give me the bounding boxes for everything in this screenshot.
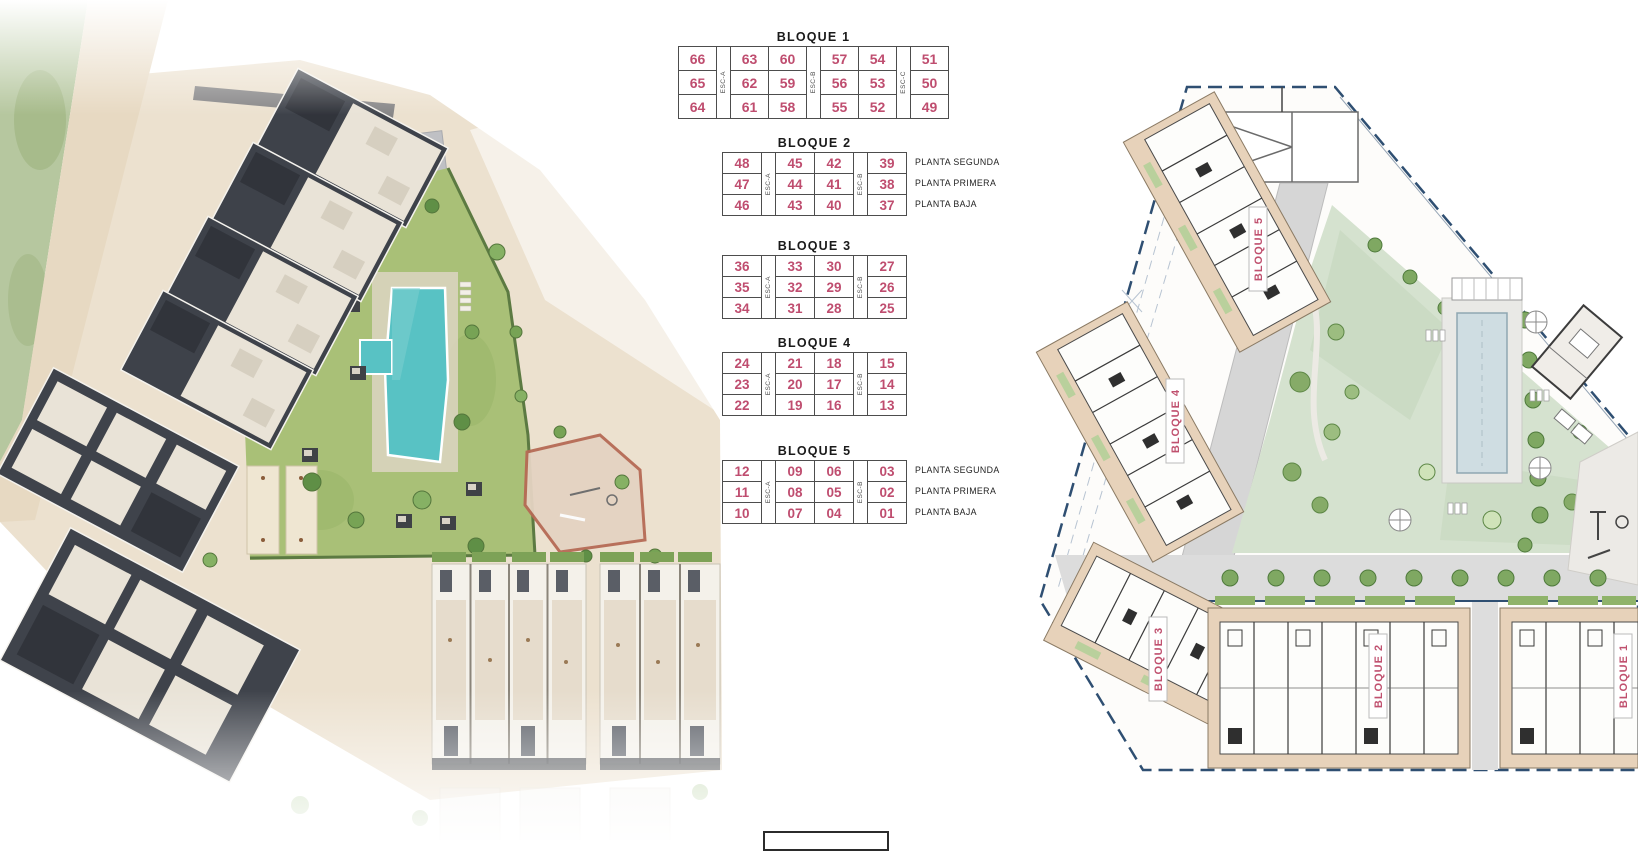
- plan-block-2: [1208, 596, 1470, 768]
- unit-cell: 27: [868, 256, 906, 276]
- unit-cell: 25: [868, 298, 906, 318]
- svg-text:BLOQUE 4: BLOQUE 4: [1170, 389, 1182, 453]
- block-table-3: BLOQUE 3ESC-AESC-B3633302735322926343128…: [722, 239, 907, 319]
- plan-block-5-label: BLOQUE 5: [1249, 207, 1267, 291]
- unit-cell: 49: [911, 95, 948, 118]
- stairwell-label-text: ESC-A: [765, 373, 772, 395]
- unit-cell: 40: [815, 195, 853, 215]
- floor-label: PLANTA SEGUNDA: [915, 460, 1000, 481]
- unit-cell: 52: [859, 95, 896, 118]
- stairwell-label-text: ESC-B: [857, 276, 864, 298]
- unit-cell: 46: [723, 195, 761, 215]
- stairwell-label-text: ESC-B: [857, 373, 864, 395]
- unit-cell: 53: [859, 71, 896, 94]
- unit-cell: 39: [868, 153, 906, 173]
- floor-label: PLANTA BAJA: [915, 502, 977, 523]
- stairwell-label: ESC-B: [854, 256, 867, 318]
- unit-cell: 18: [815, 353, 853, 373]
- stairwell-label: ESC-B: [854, 353, 867, 415]
- unit-cell: 43: [776, 195, 814, 215]
- floor-label: PLANTA BAJA: [915, 194, 977, 215]
- stairwell-label: ESC-B: [807, 47, 820, 118]
- plan-pool: [1442, 278, 1522, 483]
- unit-cell: 09: [776, 461, 814, 481]
- unit-grid: ESC-AESC-B120906031108050210070401: [722, 460, 907, 524]
- unit-cell: 21: [776, 353, 814, 373]
- unit-cell: 57: [821, 47, 858, 70]
- unit-cell: 16: [815, 395, 853, 415]
- block-table-4: BLOQUE 4ESC-AESC-B2421181523201714221916…: [722, 336, 907, 416]
- unit-cell: 61: [731, 95, 768, 118]
- stairwell-label: ESC-A: [762, 256, 775, 318]
- unit-cell: 56: [821, 71, 858, 94]
- unit-cell: 50: [911, 71, 948, 94]
- unit-cell: 24: [723, 353, 761, 373]
- block-table-1: BLOQUE 1ESC-AESC-BESC-C66636057545165625…: [678, 30, 949, 119]
- stairwell-label-text: ESC-A: [720, 71, 727, 93]
- svg-text:BLOQUE 1: BLOQUE 1: [1618, 644, 1630, 708]
- unit-cell: 13: [868, 395, 906, 415]
- unit-cell: 35: [723, 277, 761, 297]
- unit-cell: 22: [723, 395, 761, 415]
- block-title: BLOQUE 3: [722, 239, 907, 254]
- stairwell-label-text: ESC-A: [765, 173, 772, 195]
- unit-cell: 34: [723, 298, 761, 318]
- unit-cell: 05: [815, 482, 853, 502]
- unit-cell: 38: [868, 174, 906, 194]
- unit-cell: 20: [776, 374, 814, 394]
- unit-cell: 41: [815, 174, 853, 194]
- site-plan-illustration: BLOQUE 5 BLOQUE 4 BLOQUE 3 BLOQUE 2 BLOQ…: [980, 0, 1638, 840]
- unit-grid: ESC-AESC-BESC-C6663605754516562595653506…: [678, 46, 949, 119]
- unit-grid: ESC-AESC-B363330273532292634312825: [722, 255, 907, 319]
- partial-legend-box: [763, 831, 889, 851]
- unit-cell: 08: [776, 482, 814, 502]
- aerial-render-illustration: [0, 0, 750, 840]
- unit-cell: 06: [815, 461, 853, 481]
- unit-cell: 58: [769, 95, 806, 118]
- unit-cell: 26: [868, 277, 906, 297]
- stairwell-label-text: ESC-B: [857, 173, 864, 195]
- stairwell-label: ESC-A: [762, 153, 775, 215]
- stairwell-label: ESC-A: [717, 47, 730, 118]
- stairwell-label: ESC-B: [854, 461, 867, 523]
- plan-block-2-label: BLOQUE 2: [1369, 634, 1387, 718]
- floor-label: PLANTA PRIMERA: [915, 481, 996, 502]
- block-title: BLOQUE 4: [722, 336, 907, 351]
- stairwell-label-text: ESC-A: [765, 276, 772, 298]
- unit-cell: 55: [821, 95, 858, 118]
- unit-grid: ESC-AESC-B484542394744413846434037: [722, 152, 907, 216]
- unit-cell: 14: [868, 374, 906, 394]
- unit-cell: 28: [815, 298, 853, 318]
- block-table-2: BLOQUE 2ESC-AESC-B4845423947444138464340…: [722, 136, 907, 216]
- stairwell-label: ESC-B: [854, 153, 867, 215]
- svg-text:BLOQUE 3: BLOQUE 3: [1153, 627, 1165, 691]
- unit-cell: 66: [679, 47, 716, 70]
- unit-cell: 48: [723, 153, 761, 173]
- stairwell-label: ESC-A: [762, 353, 775, 415]
- avenue-trees: [1222, 570, 1606, 586]
- plan-block-4-label: BLOQUE 4: [1166, 379, 1184, 463]
- svg-text:BLOQUE 5: BLOQUE 5: [1253, 217, 1265, 281]
- unit-cell: 45: [776, 153, 814, 173]
- unit-cell: 32: [776, 277, 814, 297]
- floor-label: PLANTA SEGUNDA: [915, 152, 1000, 173]
- stairwell-label: ESC-C: [897, 47, 910, 118]
- floor-label: PLANTA PRIMERA: [915, 173, 996, 194]
- unit-cell: 54: [859, 47, 896, 70]
- unit-cell: 29: [815, 277, 853, 297]
- unit-grid: ESC-AESC-B242118152320171422191613: [722, 352, 907, 416]
- unit-cell: 65: [679, 71, 716, 94]
- unit-cell: 07: [776, 503, 814, 523]
- unit-cell: 33: [776, 256, 814, 276]
- stairwell-label: ESC-A: [762, 461, 775, 523]
- unit-cell: 42: [815, 153, 853, 173]
- stairwell-label-text: ESC-B: [857, 481, 864, 503]
- unit-cell: 36: [723, 256, 761, 276]
- block-title: BLOQUE 2: [722, 136, 907, 151]
- unit-cell: 03: [868, 461, 906, 481]
- unit-cell: 47: [723, 174, 761, 194]
- unit-cell: 31: [776, 298, 814, 318]
- plan-block-3-label: BLOQUE 3: [1149, 617, 1167, 701]
- unit-cell: 23: [723, 374, 761, 394]
- stairwell-label-text: ESC-A: [765, 481, 772, 503]
- unit-cell: 63: [731, 47, 768, 70]
- unit-cell: 11: [723, 482, 761, 502]
- brochure-page: { "tables": [ { "title": "BLOQUE 1", "es…: [0, 0, 1638, 840]
- unit-cell: 15: [868, 353, 906, 373]
- unit-cell: 37: [868, 195, 906, 215]
- unit-cell: 44: [776, 174, 814, 194]
- unit-cell: 12: [723, 461, 761, 481]
- unit-cell: 51: [911, 47, 948, 70]
- unit-cell: 62: [731, 71, 768, 94]
- unit-cell: 02: [868, 482, 906, 502]
- stairwell-label-text: ESC-B: [810, 71, 817, 93]
- plan-block-1-label: BLOQUE 1: [1614, 634, 1632, 718]
- unit-cell: 01: [868, 503, 906, 523]
- block-title: BLOQUE 5: [722, 444, 907, 459]
- driveway: [1472, 602, 1498, 770]
- unit-cell: 10: [723, 503, 761, 523]
- block-title: BLOQUE 1: [678, 30, 949, 45]
- block-table-5: BLOQUE 5ESC-AESC-B1209060311080502100704…: [722, 444, 907, 524]
- stairwell-label-text: ESC-C: [900, 71, 907, 94]
- svg-text:BLOQUE 2: BLOQUE 2: [1373, 644, 1385, 708]
- unit-cell: 17: [815, 374, 853, 394]
- unit-cell: 59: [769, 71, 806, 94]
- unit-cell: 19: [776, 395, 814, 415]
- unit-cell: 30: [815, 256, 853, 276]
- unit-cell: 04: [815, 503, 853, 523]
- unit-cell: 64: [679, 95, 716, 118]
- unit-cell: 60: [769, 47, 806, 70]
